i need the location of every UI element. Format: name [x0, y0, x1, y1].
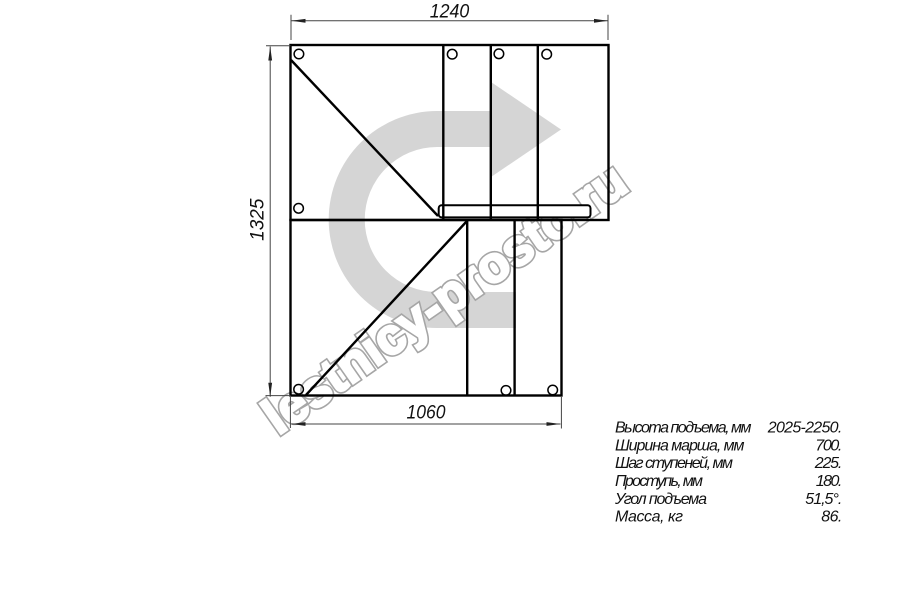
svg-text:225.: 225. — [814, 455, 843, 472]
svg-text:Проступь, мм: Проступь, мм — [615, 473, 703, 490]
svg-text:Масса, кг: Масса, кг — [615, 509, 683, 526]
svg-text:86.: 86. — [821, 509, 842, 526]
svg-text:51,5°.: 51,5°. — [805, 491, 842, 508]
svg-text:180.: 180. — [816, 473, 843, 490]
svg-text:Ширина марша, мм: Ширина марша, мм — [615, 437, 745, 454]
svg-text:1325: 1325 — [248, 198, 269, 241]
svg-text:1060: 1060 — [407, 403, 446, 424]
svg-text:700.: 700. — [815, 437, 842, 454]
svg-text:Угол подъема: Угол подъема — [614, 491, 707, 508]
svg-text:Шаг ступеней, мм: Шаг ступеней, мм — [615, 455, 733, 472]
svg-text:2025-2250.: 2025-2250. — [767, 420, 843, 437]
svg-text:Высота подъема, мм: Высота подъема, мм — [615, 420, 752, 437]
svg-text:1240: 1240 — [430, 2, 470, 23]
